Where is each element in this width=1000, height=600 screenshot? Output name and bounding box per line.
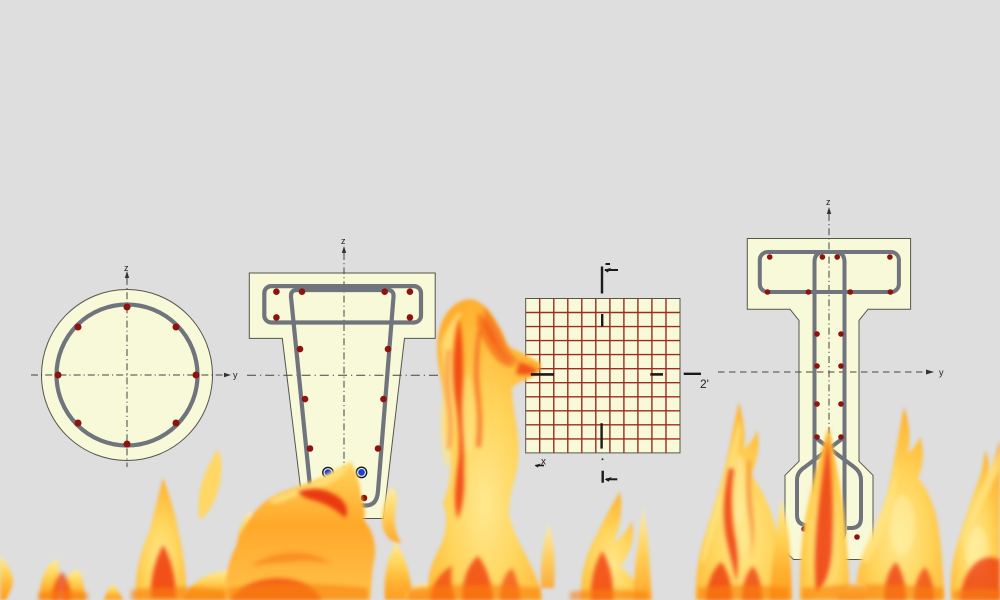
svg-text:y: y [233,370,238,380]
svg-text:2': 2' [700,377,709,391]
svg-text:y: y [939,368,944,378]
svg-text:z: z [341,236,346,246]
svg-text:z: z [826,197,831,207]
svg-text:z: z [124,263,129,273]
